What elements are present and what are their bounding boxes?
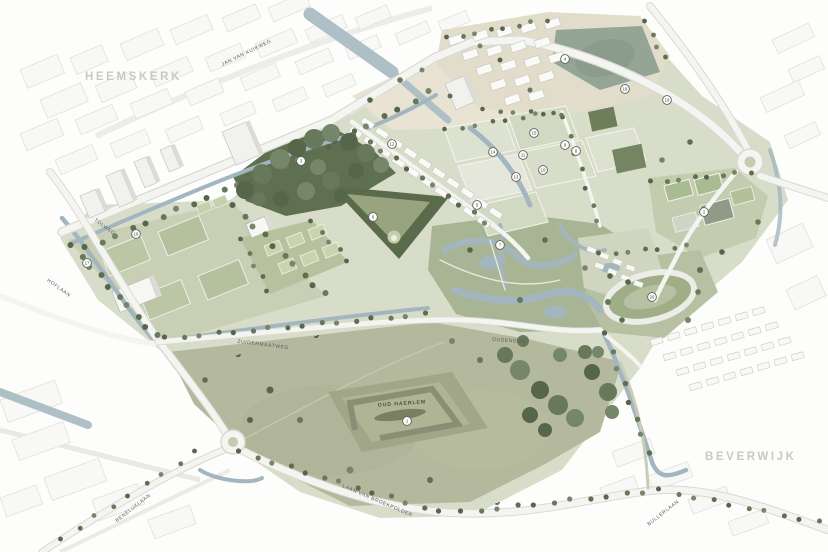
tree: [404, 166, 409, 171]
tree: [368, 315, 373, 320]
tree: [145, 481, 150, 486]
map-marker: 19: [663, 96, 672, 105]
tree: [761, 508, 766, 513]
tree: [222, 187, 228, 193]
tree: [503, 118, 508, 123]
tree: [479, 508, 484, 513]
tree: [347, 467, 354, 474]
tree: [334, 320, 339, 325]
tree: [348, 163, 364, 179]
roundabout-west-center: [228, 437, 238, 447]
tree: [517, 297, 523, 303]
tree: [269, 460, 274, 465]
tree: [704, 175, 709, 180]
tree: [638, 431, 643, 436]
marker-number: 12: [390, 142, 395, 147]
tree: [697, 267, 703, 273]
tree: [367, 97, 373, 103]
tree: [442, 127, 447, 132]
tree: [236, 448, 241, 453]
tree: [125, 494, 130, 499]
tree: [297, 417, 303, 423]
tree: [446, 193, 451, 198]
map-marker: 16: [132, 230, 141, 239]
tree: [303, 470, 308, 475]
tree: [588, 496, 593, 501]
tree: [494, 506, 499, 511]
tree: [430, 182, 435, 187]
marker-number: 16: [134, 232, 139, 237]
tree: [596, 251, 601, 256]
tree: [322, 124, 340, 142]
tree: [436, 508, 441, 513]
tree: [528, 88, 533, 93]
map-canvas: HEEMSKERK BEVERWIJK JAN VAN KUIKWEG TOLW…: [0, 0, 828, 552]
tree: [510, 360, 530, 380]
map-marker: 13: [512, 173, 521, 182]
tree: [250, 224, 256, 230]
tree: [196, 333, 201, 338]
tree: [529, 109, 534, 114]
tree: [500, 26, 505, 31]
map-marker: 12: [388, 140, 397, 149]
tree: [538, 423, 552, 437]
tree: [155, 332, 161, 338]
tree: [420, 68, 425, 73]
tree: [489, 27, 494, 32]
tree: [567, 496, 572, 501]
tree: [726, 503, 731, 508]
tree: [456, 202, 461, 207]
tree: [389, 493, 394, 498]
tree: [672, 246, 677, 251]
tree: [472, 209, 477, 214]
tree: [68, 242, 74, 248]
tree: [320, 320, 325, 325]
tree: [491, 119, 496, 124]
tree: [285, 325, 290, 330]
tree: [251, 264, 256, 269]
tree: [498, 58, 503, 63]
tree: [643, 247, 648, 252]
tree: [755, 219, 761, 225]
tree: [191, 201, 197, 207]
tree: [204, 195, 210, 201]
tree: [691, 496, 696, 501]
marker-number: 15: [532, 131, 537, 136]
tree: [569, 134, 574, 139]
tree: [265, 325, 270, 330]
tree: [604, 494, 609, 499]
tree: [482, 220, 487, 225]
tree: [202, 377, 208, 383]
tree: [580, 167, 585, 172]
tree: [626, 400, 631, 405]
tree: [444, 35, 449, 40]
tree: [591, 203, 596, 208]
tree: [497, 347, 513, 363]
tree: [304, 129, 324, 149]
tree: [659, 157, 665, 163]
tree: [642, 19, 647, 24]
tree: [238, 237, 243, 242]
marker-number: 13: [514, 175, 519, 180]
tree: [541, 112, 546, 117]
map-marker: 15: [530, 129, 539, 138]
tree: [647, 450, 652, 455]
tree: [357, 144, 375, 162]
tree: [344, 259, 349, 264]
tree: [545, 19, 550, 24]
tree: [582, 265, 588, 271]
map-marker: 18: [621, 85, 630, 94]
tree: [373, 157, 389, 173]
tree: [159, 472, 164, 477]
tree: [625, 250, 630, 255]
tree: [665, 179, 670, 184]
tree: [478, 44, 483, 49]
tree: [426, 88, 432, 94]
tree: [449, 338, 455, 344]
marker-number: 11: [521, 153, 526, 158]
tree: [267, 387, 274, 394]
tree: [655, 247, 660, 252]
tree: [352, 128, 357, 133]
tree: [423, 310, 428, 315]
tree: [334, 189, 348, 203]
tree: [427, 477, 433, 483]
tree: [236, 181, 254, 199]
tree: [467, 247, 473, 253]
tree: [338, 247, 343, 252]
tree: [531, 381, 549, 399]
tree: [178, 461, 183, 466]
tree: [230, 202, 236, 208]
tree: [173, 206, 179, 212]
tree: [602, 330, 607, 335]
map-marker: 1: [403, 417, 412, 426]
tree: [458, 508, 463, 513]
tree: [448, 94, 453, 99]
tree: [640, 490, 645, 495]
tree: [403, 314, 408, 319]
tree: [685, 317, 691, 323]
tree: [136, 314, 142, 320]
tree: [656, 487, 661, 492]
tree: [607, 273, 613, 279]
tree: [313, 148, 319, 154]
tree: [261, 274, 266, 279]
tree: [143, 221, 149, 227]
marker-number: 18: [623, 87, 628, 92]
tree: [614, 251, 619, 256]
tree: [712, 497, 717, 502]
tree: [605, 405, 619, 419]
tree: [382, 113, 388, 119]
tree: [182, 335, 187, 340]
fountain: [391, 235, 397, 241]
map-marker: 10: [539, 166, 548, 175]
tree: [721, 173, 726, 178]
map-marker: 3: [297, 157, 306, 166]
tree: [614, 366, 619, 371]
tree: [252, 164, 272, 184]
tree: [594, 219, 599, 224]
tree: [420, 175, 425, 180]
tree: [290, 261, 296, 267]
tree: [99, 272, 105, 278]
tree: [592, 346, 604, 358]
map-marker: 5: [473, 201, 482, 210]
tree: [422, 505, 427, 510]
tree: [521, 116, 526, 121]
tree: [648, 179, 653, 184]
tree: [289, 463, 294, 468]
tree: [378, 148, 383, 153]
tree: [252, 192, 266, 206]
tree: [548, 395, 568, 415]
tree: [354, 319, 359, 324]
tree: [749, 171, 754, 176]
region-label-heemskerk: HEEMSKERK: [85, 71, 182, 83]
tree: [480, 107, 485, 112]
map-marker: 4: [561, 55, 570, 64]
tree: [552, 500, 557, 505]
tree: [676, 178, 681, 183]
tree: [320, 230, 325, 235]
tree: [100, 240, 106, 246]
tree: [413, 98, 419, 104]
tree: [796, 517, 801, 522]
tree: [747, 506, 752, 511]
tree: [326, 144, 332, 150]
masterplan-map: HEEMSKERK BEVERWIJK JAN VAN KUIKWEG TOLW…: [0, 0, 828, 552]
tree: [368, 139, 373, 144]
marker-number: 20: [650, 295, 655, 300]
tree: [310, 159, 326, 175]
tree: [303, 272, 309, 278]
tree: [326, 240, 331, 245]
tree: [584, 364, 600, 380]
map-marker: 2: [700, 208, 709, 217]
tree: [394, 155, 399, 160]
map-marker: 11: [519, 151, 528, 160]
tree: [522, 407, 538, 423]
tree: [124, 302, 130, 308]
region-label-beverwijk: BEVERWIJK: [705, 451, 797, 463]
tree: [363, 123, 369, 129]
marker-number: 19: [665, 98, 670, 103]
tree: [578, 345, 592, 359]
tree: [310, 282, 316, 288]
tree: [243, 214, 249, 220]
tree: [635, 417, 640, 422]
tree: [472, 31, 477, 36]
tree: [111, 504, 116, 509]
tree: [322, 172, 340, 190]
tree: [389, 316, 394, 321]
map-marker: 17: [83, 259, 92, 268]
tree: [695, 289, 701, 295]
tree: [605, 299, 611, 305]
tree: [461, 34, 466, 39]
tree: [531, 502, 536, 507]
tree: [732, 170, 737, 175]
tree: [340, 133, 358, 151]
tree: [623, 381, 628, 386]
tree: [288, 139, 306, 157]
tree: [251, 328, 256, 333]
tree: [553, 348, 567, 362]
tree: [599, 383, 617, 401]
tree: [719, 249, 725, 255]
tree: [551, 111, 556, 116]
tree: [82, 244, 88, 250]
tree: [256, 455, 261, 460]
tree: [323, 290, 329, 296]
marker-number: 10: [541, 168, 546, 173]
tree: [663, 55, 668, 60]
tree: [403, 500, 408, 505]
tree: [162, 334, 167, 339]
tree: [283, 253, 289, 259]
tree: [625, 490, 630, 495]
tree: [511, 110, 516, 115]
tree: [217, 330, 222, 335]
marker-number: 14: [491, 150, 496, 155]
map-marker: 8: [572, 147, 581, 156]
tree: [270, 149, 290, 169]
tree: [248, 251, 253, 256]
tree: [687, 139, 693, 145]
tree: [693, 174, 698, 179]
roundabout-east-center: [745, 157, 756, 168]
tree: [161, 214, 167, 220]
tree: [297, 182, 315, 200]
tree: [58, 537, 63, 542]
map-marker: 9: [561, 141, 570, 150]
tree: [264, 289, 269, 294]
tree: [92, 513, 97, 518]
tree: [782, 513, 787, 518]
tree: [542, 237, 548, 243]
tree: [472, 124, 477, 129]
tree: [651, 33, 656, 38]
tree: [78, 526, 83, 531]
tree: [308, 219, 313, 224]
tree: [817, 519, 822, 524]
tree: [528, 19, 533, 24]
tree: [300, 324, 305, 329]
tree: [625, 279, 631, 285]
map-marker: 14: [489, 148, 498, 157]
tree: [533, 111, 538, 116]
tree: [517, 24, 522, 29]
marker-number: 17: [85, 261, 90, 266]
tree: [247, 417, 253, 423]
tree: [677, 492, 682, 497]
tree: [583, 186, 588, 191]
tree: [394, 107, 400, 113]
tree: [192, 449, 197, 454]
pond: [543, 306, 567, 318]
tree: [611, 349, 616, 354]
tree: [105, 284, 111, 290]
map-marker: 20: [648, 293, 657, 302]
tree: [231, 330, 236, 335]
tree: [336, 478, 341, 483]
tree: [566, 409, 584, 427]
map-marker: 6: [369, 213, 378, 222]
tree: [498, 110, 503, 115]
tree: [142, 324, 148, 330]
tree: [263, 231, 269, 237]
tree: [460, 126, 465, 131]
map-marker: 7: [496, 241, 505, 250]
tree: [619, 317, 625, 323]
tree: [322, 475, 327, 480]
tree: [117, 294, 123, 300]
tree: [397, 77, 403, 83]
tree: [273, 191, 289, 207]
tree: [477, 357, 483, 363]
tree: [270, 243, 276, 249]
tree: [516, 502, 521, 507]
tree: [559, 113, 564, 118]
tree: [654, 45, 659, 50]
tree: [684, 243, 689, 248]
